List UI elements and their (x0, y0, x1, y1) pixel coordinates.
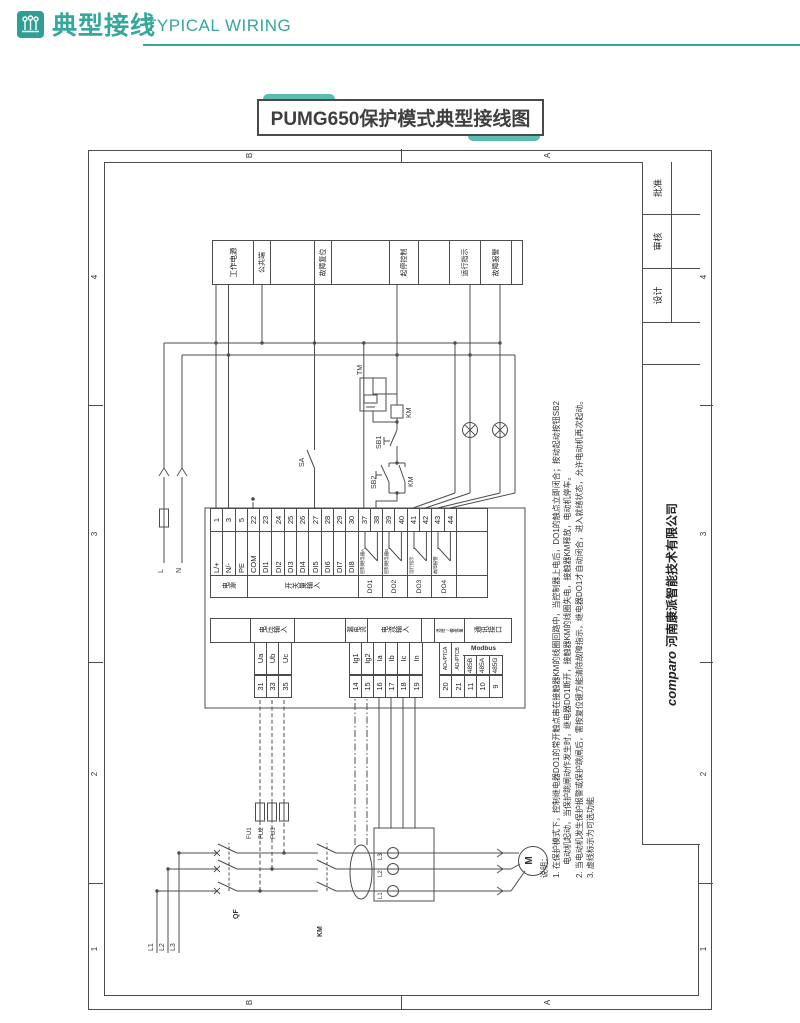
do-contact-cell: 运行指示 (408, 532, 433, 575)
terminal-label: DI5 (309, 532, 321, 575)
terminal-number: 25 (285, 509, 297, 531)
terminal-number: 44 (445, 509, 457, 531)
group-label: 开关量输入 (248, 576, 359, 597)
neutral-label: N (176, 568, 184, 573)
approve-signature-cell (671, 162, 700, 215)
zone-number: 3 (90, 524, 99, 544)
terminal-number: 37 (359, 509, 371, 531)
terminal-label: Ig1 (350, 643, 362, 674)
notes-line: 2. 当电动机发生保护报警或保护跳闸后，需按复位键方能清除故障指示，继电器DO1… (574, 326, 586, 878)
zone-number: 2 (699, 764, 708, 784)
page-title-cn: 典型接线 (52, 6, 156, 42)
ct-hole-label: L1 (377, 892, 385, 899)
analog-groups: 电压输入 漏电流 电流输入 温度/模拟量 通讯接口 (210, 618, 512, 643)
terminal-number: 24 (272, 509, 284, 531)
terminal-number: 11 (465, 676, 477, 697)
current-terminal-numbers: 14 15 16 17 18 19 (349, 675, 423, 698)
main-terminal-labels: L/+ N/- PE COM DI1 DI2 DI3 DI4 DI5 DI6 D… (210, 531, 488, 576)
terminal-number: 22 (248, 509, 260, 531)
coil-label: KM (406, 408, 414, 419)
main-terminal-groups: 电源 开关量输入 DO1 DO2 DO3 DO4 (210, 575, 488, 598)
group-label: 温度/模拟量 (435, 619, 465, 642)
terminal-number: 18 (398, 676, 410, 697)
group-label: DO2 (383, 576, 408, 597)
terminal-number: 30 (346, 509, 358, 531)
main-terminal-numbers: 1 3 5 22 23 24 25 26 27 28 29 30 37 38 3… (210, 508, 488, 532)
terminal-number: 29 (334, 509, 346, 531)
fuse-label: FU2 (258, 827, 266, 839)
legend-cell: 故障复位 (315, 241, 332, 284)
voltage-terminal-numbers: 31 33 35 (254, 675, 292, 698)
terminal-label: DI1 (260, 532, 272, 575)
drawing-title: PUMG650保护模式典型接线图 (257, 99, 544, 136)
terminal-number: 5 (236, 509, 248, 531)
group-label: 电压输入 (251, 619, 295, 642)
design-cell: 设计 (642, 269, 671, 323)
check-cell: 审核 (642, 215, 671, 269)
terminal-label: PE (236, 532, 248, 575)
terminal-number: 19 (410, 676, 422, 697)
zone-number: 1 (90, 939, 99, 959)
zone-number: 3 (699, 524, 708, 544)
terminal-number: 42 (420, 509, 432, 531)
terminal-number: 14 (350, 676, 362, 697)
zone-number: 2 (90, 764, 99, 784)
terminal-label: Ua (255, 643, 267, 674)
terminal-number: 17 (386, 676, 398, 697)
start-button-label: SB2 (371, 476, 379, 489)
page-title-en: TYPICAL WIRING (146, 16, 291, 36)
wiring-icon-glyph (17, 11, 44, 38)
current-terminal-labels: Ig1 Ig2 Ia Ib Ic In (349, 642, 423, 675)
phase-label: L2 (159, 943, 167, 951)
terminal-number: 39 (383, 509, 395, 531)
terminal-label: Ig2 (362, 643, 374, 674)
legend-cell: 运行指示 (450, 241, 481, 284)
check-signature-cell (671, 215, 700, 269)
terminal-number: 41 (408, 509, 420, 531)
terminal-label: N/- (223, 532, 235, 575)
group-label: 电源 (211, 576, 248, 597)
header-underline (143, 44, 800, 46)
terminal-label: DI6 (322, 532, 334, 575)
legend-cell: 起停控制 (390, 241, 419, 284)
notes-line: 电动机起动，当保护跳闸动作发生时，继电器DO1断开，接触器KM的线圈失电，接触器… (562, 326, 574, 878)
terminal-label: Uc (279, 643, 291, 674)
di-switch-label: SA (299, 458, 307, 467)
aux-contact-label: KM (408, 477, 416, 488)
ct-hole-label: L3 (377, 853, 385, 860)
terminal-number: 38 (371, 509, 383, 531)
terminal-number: 27 (309, 509, 321, 531)
zone-letter: A (543, 996, 552, 1009)
terminal-number: 35 (279, 676, 291, 697)
terminal-number: 9 (490, 676, 502, 697)
terminal-number: 31 (255, 676, 267, 697)
terminal-label: DI2 (272, 532, 284, 575)
breaker-label: QF (233, 909, 241, 919)
terminal-number: 26 (297, 509, 309, 531)
voltage-terminal-labels: Ua Ub Uc (254, 642, 292, 675)
fuse-label: FU3 (270, 827, 278, 839)
terminal-label: Ib (386, 643, 398, 674)
ct-hole-label: L2 (377, 870, 385, 877)
suppressor-label: TM (357, 365, 365, 375)
group-label: 漏电流 (346, 619, 368, 642)
do-contact-cell: 控制继电器B (383, 532, 408, 575)
inner-frame: L1 L2 L3 QF KM FU1 FU2 FU3 L1 L2 L3 M L … (104, 162, 699, 996)
notes-block: 说明： 1. 在保护模式下，控制继电器DO1的常开触点串在接触器KM的线圈回路中… (539, 326, 597, 878)
terminal-label: AO+/PTCA (440, 643, 452, 674)
group-label: 通讯接口 (465, 619, 511, 642)
do-contact-cell: 故障报警 (432, 532, 457, 575)
terminal-number: 33 (267, 676, 279, 697)
zone-number: 4 (699, 267, 708, 287)
terminal-number: 28 (322, 509, 334, 531)
group-label: 电流输入 (368, 619, 422, 642)
terminal-number: 43 (432, 509, 444, 531)
titleblock-empty-cell (642, 323, 700, 365)
notes-line: 3. 虚线标示为可选功能 (585, 326, 597, 878)
terminal-label: L/+ (211, 532, 223, 575)
contactor-label: KM (317, 926, 325, 937)
terminal-number: 40 (395, 509, 407, 531)
drawing-sheet: 4 3 2 1 4 3 2 1 B A B A (88, 150, 712, 1010)
design-signature-cell (671, 269, 700, 323)
modbus-band: Modbus (463, 642, 503, 656)
stop-button-label: SB1 (376, 436, 384, 449)
terminal-number: 23 (260, 509, 272, 531)
legend-cell: 公共端 (254, 241, 271, 284)
do-contact-cell: 控制继电器A (359, 532, 384, 575)
terminal-number: 21 (452, 676, 464, 697)
terminal-number: 3 (223, 509, 235, 531)
zone-letter: B (245, 996, 254, 1009)
terminal-label: Ic (398, 643, 410, 674)
terminal-number: 20 (440, 676, 452, 697)
manual-page: 典型接线 TYPICAL WIRING PUMG650保护模式典型接线图 4 3… (0, 0, 800, 1023)
motor-label: M (526, 850, 534, 871)
terminal-label: DI8 (346, 532, 358, 575)
phase-label: L3 (170, 943, 178, 951)
company-cell: comparo河南康派智能技术有限公司 (642, 365, 700, 845)
terminal-label: Ub (267, 643, 279, 674)
group-label: DO3 (408, 576, 433, 597)
terminal-label: DI3 (285, 532, 297, 575)
terminal-legend-bar: 工作电源 公共端 故障复位 起停控制 运行指示 故障报警 (212, 240, 523, 285)
wiring-icon (17, 11, 44, 38)
legend-cell: 工作电源 (213, 241, 254, 284)
company-name: comparo河南康派智能技术有限公司 (663, 503, 680, 706)
fuse-label: FU1 (246, 827, 254, 839)
terminal-label: COM (248, 532, 260, 575)
zone-number: 4 (90, 267, 99, 287)
notes-title: 说明： (539, 326, 551, 878)
group-label: DO1 (359, 576, 384, 597)
zone-number: 1 (699, 939, 708, 959)
terminal-label: DI4 (297, 532, 309, 575)
terminal-number: 15 (362, 676, 374, 697)
terminal-number: 10 (477, 676, 489, 697)
notes-line: 1. 在保护模式下，控制继电器DO1的常开触点串在接触器KM的线圈回路中，当控制… (551, 326, 563, 878)
company-logo: comparo (664, 651, 679, 706)
line-label: L (158, 569, 166, 573)
phase-label: L1 (148, 943, 156, 951)
legend-cell: 故障报警 (481, 241, 512, 284)
terminal-label: In (410, 643, 422, 674)
terminal-label: DI7 (334, 532, 346, 575)
comm-terminal-numbers: 20 21 11 10 9 (439, 675, 503, 698)
modbus-label: Modbus (471, 645, 496, 652)
group-label: DO4 (432, 576, 457, 597)
terminal-number: 1 (211, 509, 223, 531)
approve-cell: 批准 (642, 162, 671, 215)
terminal-label: Ia (374, 643, 386, 674)
terminal-number: 16 (374, 676, 386, 697)
